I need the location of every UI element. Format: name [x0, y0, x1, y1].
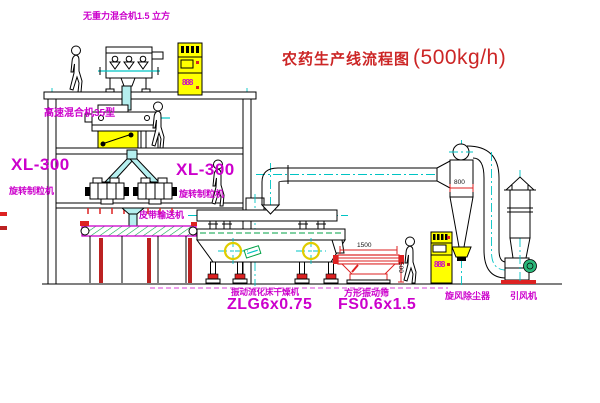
label-cyclone-name: 旋风除尘器	[445, 292, 490, 301]
fluid-bed-dryer	[188, 210, 348, 283]
label-granulator-right: 旋转制粒机	[179, 190, 224, 199]
label-belt-conveyor: 皮带输送机	[139, 211, 184, 220]
title-text: 农药生产线流程图	[282, 48, 410, 69]
exhaust-duct	[256, 163, 450, 214]
cabinet1-display: 888	[182, 79, 192, 87]
dimension-screen-height: 500	[397, 262, 404, 273]
gravity-free-mixer	[98, 47, 163, 92]
label-dryer-model: ZLG6x0.75	[227, 297, 312, 313]
cabinet2-display: 888	[434, 261, 444, 269]
belt-conveyor	[80, 221, 197, 283]
title-capacity: (500kg/h)	[413, 46, 506, 70]
label-screen-model: FS0.6x1.5	[338, 297, 416, 313]
label-granulator-left: 旋转制粒机	[9, 187, 54, 196]
dimension-screen-length: 1500	[357, 243, 371, 250]
control-cabinet-2	[431, 232, 452, 283]
label-top-mixer: 无重力混合机1.5 立方	[83, 12, 170, 21]
person-roof	[70, 46, 82, 92]
label-mid-mixer: 高速混合机35型	[44, 109, 115, 119]
drawing-canvas: 农药生产线流程图 (500kg/h) 无重力混合机1.5 立方 高速混合机35型…	[0, 0, 600, 403]
label-xl300-left: XL-300	[11, 156, 70, 173]
drawing-title: 农药生产线流程图 (500kg/h)	[282, 46, 506, 70]
label-xl300-right: XL-300	[176, 161, 235, 178]
induced-draft-fan	[501, 238, 537, 284]
control-cabinet-1	[178, 43, 202, 95]
label-fan-name: 引风机	[510, 292, 537, 301]
person-ground	[404, 237, 416, 283]
dimension-cyclone-diameter: 800	[454, 180, 465, 187]
